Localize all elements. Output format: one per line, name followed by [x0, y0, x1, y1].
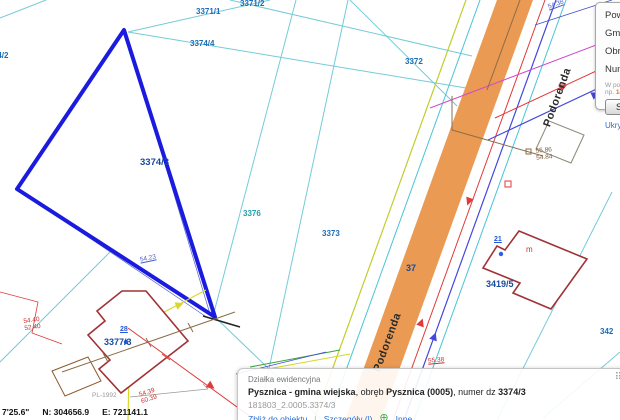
search-hint-line1: W polu: [605, 82, 620, 89]
popup-obreb-prefix: , obręb: [356, 387, 387, 397]
parcel-label-3419-5: 3419/5: [486, 280, 514, 289]
popup-obreb-name: Pysznica (0005): [386, 387, 453, 397]
popup-parcel-description: Pysznica - gmina wiejska, obręb Pysznica…: [248, 387, 620, 397]
search-button[interactable]: Szukaj: [605, 99, 620, 115]
parcel-label-3372: 3372: [405, 58, 423, 66]
cadastral-map-app: 3371/2 3371/1 3374/4 3374/2 3372 3374/3 …: [0, 0, 620, 420]
building-small-left: [52, 357, 101, 396]
parcel-label-37-partial: 37: [406, 264, 416, 273]
popup-numer-prefix: , numer dz: [453, 387, 498, 397]
parcel-boundary-lines: [0, 0, 620, 420]
parcel-label-3376: 3376: [243, 210, 261, 218]
parcel-label-3374-3-selected: 3374/3: [140, 158, 169, 168]
address-number-21: 21: [494, 236, 502, 243]
arrow-icon: [429, 331, 439, 341]
search-hint-example: 14: [616, 89, 620, 96]
hide-panel-link[interactable]: Ukryj panel: [605, 121, 620, 130]
parcel-label-3373: 3373: [322, 230, 340, 238]
measurement-55-86-54-84: 55.86 54.84: [535, 147, 552, 161]
parcel-label-3374-4: 3374/4: [190, 40, 214, 48]
search-panel: Powiat Gmina Obręb Numer W polu np. 14 S…: [595, 2, 620, 110]
search-field-gmina-label: Gmina: [605, 28, 620, 39]
measurement-54-40-52-40: 54.40 52.40: [23, 317, 41, 332]
search-field-powiat-label: Powiat: [605, 10, 620, 21]
add-circle-icon[interactable]: ⊕: [379, 413, 388, 420]
arrow-icon: [416, 317, 426, 327]
parcel-label-3371-1: 3371/1: [196, 8, 220, 16]
map-canvas[interactable]: [0, 0, 620, 420]
parcel-label-3377-3: 3377/3: [104, 338, 132, 347]
arrow-icon: [206, 381, 217, 392]
structure-marker: [505, 181, 511, 187]
building-3377-3: [88, 291, 188, 393]
zoom-to-object-link[interactable]: Zbliż do obiektu: [248, 414, 308, 420]
building-function-letter: m: [526, 246, 533, 254]
selected-parcel-outline: [17, 30, 240, 327]
datum-label-pl1992: PL-1992: [92, 393, 117, 400]
details-link[interactable]: Szczegóły (l): [324, 414, 373, 420]
search-hint-prefix: np.: [605, 89, 616, 96]
coordinate-northing: N: 304656.9: [42, 407, 89, 417]
coordinate-statusbar: 7'25.6"N: 304656.9E: 721141.1: [2, 407, 161, 417]
search-field-obreb-label: Obręb: [605, 46, 620, 57]
popup-grip-icon[interactable]: ⠿: [615, 372, 620, 383]
parcel-label-342-partial: 342: [600, 328, 613, 336]
popup-gmina-name: Pysznica - gmina wiejska: [248, 387, 356, 397]
parcel-info-popup: ⠿ Działka ewidencyjna Pysznica - gmina w…: [237, 368, 620, 420]
coordinate-dms: 7'25.6": [2, 407, 29, 417]
other-actions-link[interactable]: Inne: [396, 414, 413, 420]
coordinate-easting: E: 721141.1: [102, 407, 148, 417]
address-number-28: 28: [120, 326, 128, 333]
popup-parcel-identifier: 181803_2.0005.3374/3: [248, 400, 620, 410]
parcel-label-3371-2: 3371/2: [240, 0, 264, 8]
popup-parcel-number: 3374/3: [498, 387, 526, 397]
link-separator: |: [315, 414, 317, 420]
parcel-label-3374-2: 3374/2: [0, 52, 8, 60]
popup-action-links: Zbliż do obiektu | Szczegóły (l) ⊕ Inne: [248, 413, 620, 420]
search-hint-line2: np. 14: [605, 89, 620, 96]
popup-object-type: Działka ewidencyjna: [248, 375, 620, 384]
search-field-numer-label: Numer: [605, 64, 620, 75]
